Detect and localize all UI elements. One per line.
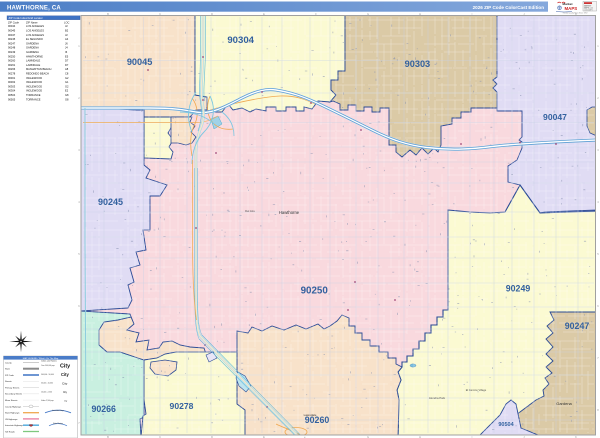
svg-text:Del Aire: Del Aire bbox=[245, 209, 255, 213]
svg-text:Interstate Highways: Interstate Highways bbox=[5, 424, 23, 427]
svg-text:90304: 90304 bbox=[8, 89, 16, 93]
svg-text:90304: 90304 bbox=[227, 35, 254, 46]
svg-text:90505: 90505 bbox=[8, 97, 16, 101]
svg-text:90245: 90245 bbox=[8, 37, 16, 41]
svg-text:500,000 - 50,000: 500,000 - 50,000 bbox=[41, 374, 54, 376]
svg-text:90303: 90303 bbox=[405, 59, 431, 69]
svg-text:B2: B2 bbox=[65, 29, 69, 33]
svg-text:C8: C8 bbox=[65, 72, 69, 76]
svg-text:90045: 90045 bbox=[8, 29, 16, 33]
svg-text:ZIP Code Index/Grid Locator: ZIP Code Index/Grid Locator bbox=[9, 16, 43, 20]
svg-text:INGLEWOOD: INGLEWOOD bbox=[26, 76, 42, 80]
svg-text:G8: G8 bbox=[65, 97, 69, 101]
svg-text:G8: G8 bbox=[65, 93, 69, 97]
svg-text:City: City bbox=[60, 363, 70, 369]
svg-text:Over 500,000 pop.: Over 500,000 pop. bbox=[41, 364, 56, 367]
svg-text:D7: D7 bbox=[65, 63, 69, 67]
svg-text:GARDENA: GARDENA bbox=[26, 50, 39, 54]
svg-text:B: B bbox=[107, 12, 109, 16]
svg-text:ZIP Code: ZIP Code bbox=[5, 375, 15, 377]
svg-text:Primary Streets: Primary Streets bbox=[5, 386, 19, 389]
svg-text:Streets: Streets bbox=[5, 380, 12, 383]
svg-text:G: G bbox=[367, 12, 369, 16]
svg-text:LOS ANGELES: LOS ANGELES bbox=[26, 29, 44, 33]
svg-text:90260: 90260 bbox=[8, 59, 16, 63]
svg-text:90047: 90047 bbox=[8, 33, 16, 37]
svg-text:50,000 - 10,000: 50,000 - 10,000 bbox=[41, 383, 53, 385]
svg-text:E: E bbox=[263, 12, 265, 16]
svg-text:90247: 90247 bbox=[565, 321, 590, 331]
svg-text:K: K bbox=[575, 12, 577, 16]
svg-text:C: C bbox=[159, 12, 161, 16]
svg-text:TORRANCE: TORRANCE bbox=[26, 93, 41, 97]
svg-text:D: D bbox=[211, 12, 213, 16]
svg-text:90249: 90249 bbox=[8, 50, 16, 54]
svg-text:G1: G1 bbox=[65, 80, 69, 84]
svg-text:Cities and Towns: Cities and Towns bbox=[41, 360, 57, 363]
svg-text:90250: 90250 bbox=[8, 54, 16, 58]
svg-text:LOS ANGELES: LOS ANGELES bbox=[26, 33, 44, 37]
svg-text:90504: 90504 bbox=[8, 93, 16, 97]
svg-text:State Routes: State Routes bbox=[53, 422, 63, 425]
svg-text:INGLEWOOD: INGLEWOOD bbox=[26, 89, 42, 93]
svg-text:TORRANCE: TORRANCE bbox=[26, 97, 41, 101]
svg-text:City: City bbox=[61, 372, 69, 377]
svg-text:Under 2,500 pop.: Under 2,500 pop. bbox=[41, 399, 55, 402]
svg-text:Gardena: Gardena bbox=[556, 401, 572, 406]
svg-text:City: City bbox=[62, 382, 68, 386]
svg-text:90278: 90278 bbox=[170, 401, 194, 411]
svg-text:State: State bbox=[5, 368, 11, 371]
svg-text:County Highways: County Highways bbox=[5, 405, 21, 408]
svg-text:ZIP Code: ZIP Code bbox=[8, 20, 19, 24]
svg-text:HAWTHORNE, CA: HAWTHORNE, CA bbox=[7, 5, 61, 11]
svg-text:REDONDO BEACH: REDONDO BEACH bbox=[26, 72, 49, 76]
svg-text:90278: 90278 bbox=[8, 72, 16, 76]
svg-text:MAP LEGEND / What's On The Map: MAP LEGEND / What's On The Map bbox=[23, 357, 59, 360]
svg-text:MANHATTAN BEACH: MANHATTAN BEACH bbox=[26, 67, 52, 71]
svg-text:G2: G2 bbox=[65, 76, 69, 80]
svg-text:90266: 90266 bbox=[8, 67, 16, 71]
svg-text:90245: 90245 bbox=[98, 197, 123, 207]
svg-text:90249: 90249 bbox=[506, 284, 531, 294]
svg-text:LOS ANGELES: LOS ANGELES bbox=[26, 24, 44, 28]
svg-text:90250: 90250 bbox=[301, 286, 329, 297]
svg-text:HAWTHORNE: HAWTHORNE bbox=[26, 54, 43, 58]
svg-text:90248: 90248 bbox=[8, 46, 16, 50]
svg-text:EL SEGUNDO: EL SEGUNDO bbox=[26, 37, 43, 41]
svg-text:Alondra Park: Alondra Park bbox=[429, 396, 446, 400]
svg-text:E5: E5 bbox=[65, 54, 69, 58]
svg-text:E2: E2 bbox=[65, 89, 69, 93]
svg-text:90504: 90504 bbox=[498, 422, 514, 428]
svg-text:G2: G2 bbox=[65, 84, 69, 88]
svg-text:90044: 90044 bbox=[8, 24, 16, 28]
svg-text:90247: 90247 bbox=[8, 41, 16, 45]
svg-text:LAWNDALE: LAWNDALE bbox=[26, 59, 40, 63]
svg-text:90261: 90261 bbox=[8, 63, 16, 67]
svg-text:Secondary Streets: Secondary Streets bbox=[5, 393, 22, 396]
svg-text:90301: 90301 bbox=[8, 76, 16, 80]
svg-text:Hawthorne: Hawthorne bbox=[279, 210, 300, 215]
svg-text:90266: 90266 bbox=[91, 404, 116, 414]
svg-text:INGLEWOOD: INGLEWOOD bbox=[26, 84, 42, 88]
svg-text:90047: 90047 bbox=[543, 112, 567, 122]
svg-text:County: County bbox=[5, 361, 13, 364]
svg-text:90302: 90302 bbox=[8, 80, 16, 84]
svg-text:A8: A8 bbox=[65, 67, 69, 71]
svg-text:MAPS.com: MAPS.com bbox=[584, 7, 593, 10]
svg-text:LAWNDALE: LAWNDALE bbox=[26, 63, 40, 67]
svg-text:10,000 - 2,500: 10,000 - 2,500 bbox=[41, 391, 52, 393]
svg-text:El Camino Village: El Camino Village bbox=[466, 388, 487, 392]
svg-text:Interstate Hwys: Interstate Hwys bbox=[52, 409, 64, 412]
svg-text:D7: D7 bbox=[65, 59, 69, 63]
svg-text:H: H bbox=[419, 12, 421, 16]
svg-text:State Highways: State Highways bbox=[5, 412, 19, 415]
svg-text:City: City bbox=[64, 400, 67, 403]
svg-text:MAPS: MAPS bbox=[565, 6, 578, 11]
svg-text:Lawndale: Lawndale bbox=[304, 413, 317, 417]
svg-text:US Highways: US Highways bbox=[5, 419, 17, 421]
svg-text:INGLEWOOD: INGLEWOOD bbox=[26, 80, 42, 84]
svg-text:A4: A4 bbox=[65, 37, 69, 41]
svg-text:90303: 90303 bbox=[8, 84, 16, 88]
svg-text:2026 ZIP Code ColorCast Editio: 2026 ZIP Code ColorCast Edition bbox=[473, 5, 545, 10]
svg-text:LOC: LOC bbox=[64, 20, 69, 24]
svg-text:GARDENA: GARDENA bbox=[26, 41, 39, 45]
svg-text:90045: 90045 bbox=[127, 57, 153, 67]
svg-text:Toll Roads: Toll Roads bbox=[5, 431, 15, 433]
svg-text:GARDENA: GARDENA bbox=[26, 46, 39, 50]
svg-text:ZIP Name: ZIP Name bbox=[26, 20, 38, 24]
svg-text:Minor Streets: Minor Streets bbox=[5, 399, 17, 402]
